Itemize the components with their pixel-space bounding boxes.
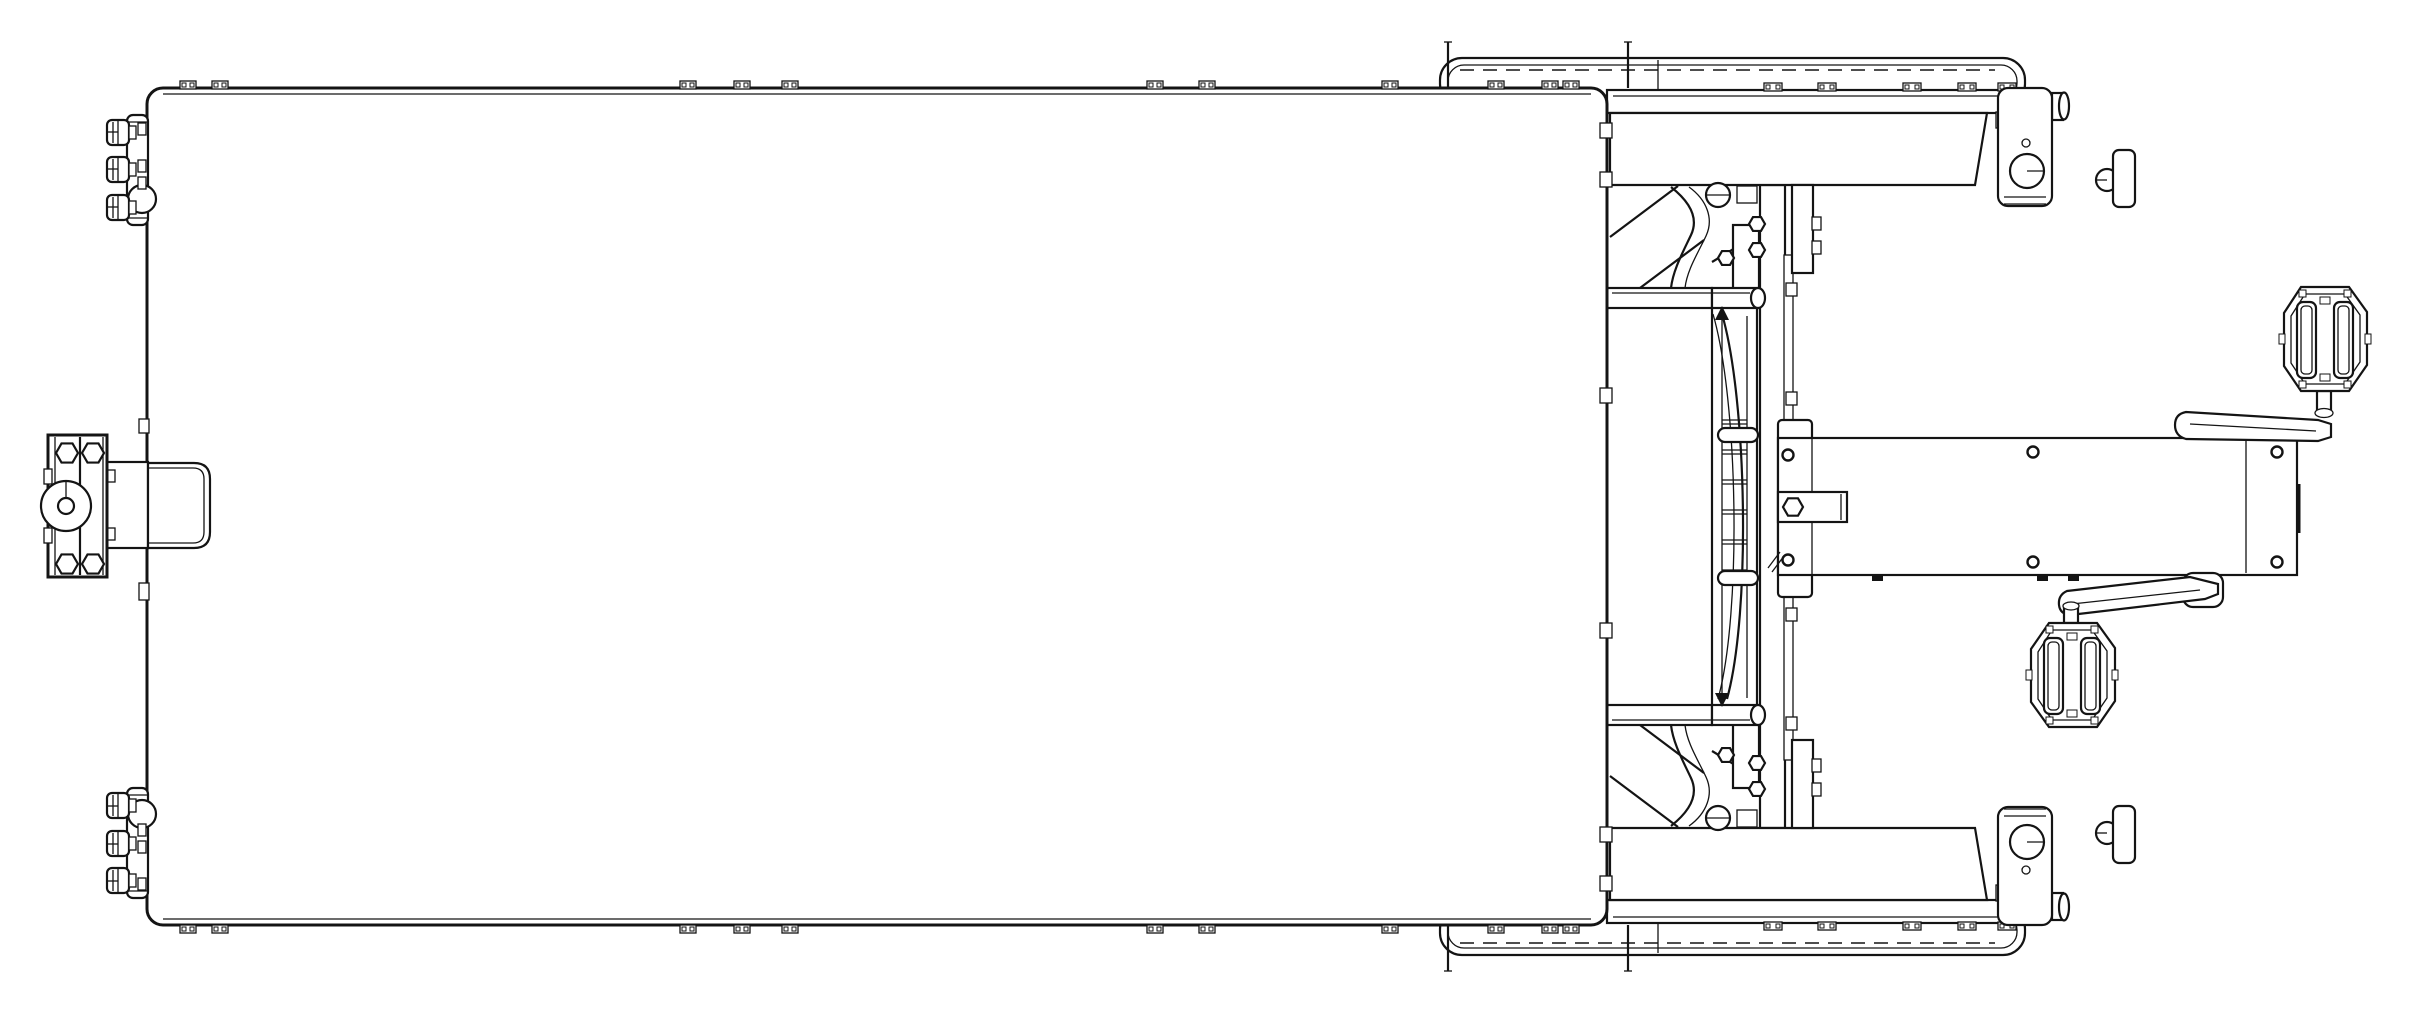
seat-cross-tube — [1607, 288, 1712, 308]
boom-beam — [1778, 438, 2297, 575]
cargo-bed-panel — [147, 88, 1607, 925]
trailer-top-view-drawing — [0, 0, 2409, 1020]
receiver-socket — [148, 463, 210, 548]
roller-cluster — [107, 115, 156, 225]
boom-arm — [1778, 420, 2299, 597]
crank-upper — [2175, 412, 2331, 441]
cargo-bed — [139, 88, 1612, 925]
cross-rail — [1607, 90, 2030, 113]
spring-bow-inner — [1713, 314, 1734, 699]
pedal-upper — [2279, 287, 2371, 391]
coupler-center-hole — [58, 498, 74, 514]
hub-bracket — [1996, 88, 2135, 207]
seat-spring-assembly — [1712, 308, 1757, 705]
frame-bench-band — [1610, 113, 1987, 185]
spring-clamp — [1718, 428, 1758, 442]
drawing-page — [0, 0, 2409, 1020]
tongue-bolt — [1783, 498, 1803, 515]
roller-cluster-bottom-mirror — [107, 788, 156, 898]
axle-bar — [2113, 150, 2135, 207]
pedal-lower — [2026, 623, 2118, 727]
bent-tube — [1671, 187, 1694, 288]
crank-lower — [2059, 577, 2218, 615]
rollers — [107, 120, 136, 220]
